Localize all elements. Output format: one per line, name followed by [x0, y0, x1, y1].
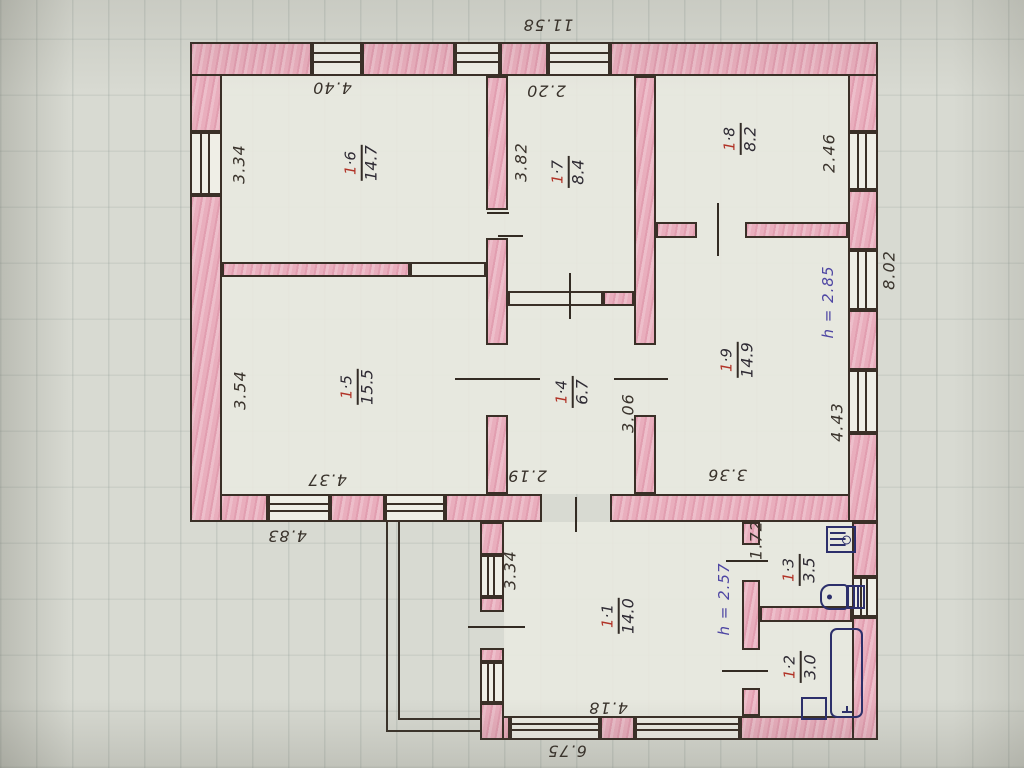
room-area: 14.9: [738, 342, 756, 378]
room-number: 1·9: [720, 342, 739, 378]
wall-segment: [486, 76, 508, 210]
wall-segment: [222, 262, 410, 277]
room-area: 6.7: [573, 376, 591, 408]
room-area: 8.2: [741, 123, 759, 155]
window-symbol: [635, 716, 740, 740]
room-label-1-8: 1·8 8.2: [723, 123, 760, 155]
room-number: 1·3: [782, 554, 801, 586]
room-label-1-9: 1·9 14.9: [720, 342, 757, 378]
window-symbol: [848, 250, 878, 310]
window-symbol: [268, 494, 330, 522]
room-number: 1·7: [551, 156, 570, 188]
dim-label-room11-height: 3.34: [501, 550, 520, 590]
room-area: 3.5: [800, 554, 818, 586]
wall-segment: [190, 42, 312, 76]
window-symbol: [480, 662, 504, 703]
dim-label-annex-total: 6.75: [547, 742, 587, 761]
window-symbol: [548, 42, 610, 76]
water-heater-icon: [826, 526, 856, 553]
ceiling-height-main: h = 2.85: [819, 265, 837, 338]
room-label-1-2: 1·2 3.0: [783, 651, 820, 683]
wall-partition-open: [508, 291, 603, 306]
dim-label-room13-height: 1.72: [747, 520, 766, 560]
room-area: 15.5: [358, 369, 376, 405]
wall-segment: [362, 42, 455, 76]
window-symbol: [510, 716, 600, 740]
photographed-floor-plan: 11.58 4.40 2.20 4.37 4.83 2.19 3.36 4.18…: [0, 0, 1024, 768]
window-symbol: [385, 494, 445, 522]
wall-segment: [656, 222, 697, 238]
wall-segment: [603, 291, 634, 306]
room-number: 1·5: [340, 369, 359, 405]
wall-segment: [480, 597, 504, 612]
window-symbol: [190, 132, 222, 195]
wall-segment: [745, 222, 848, 238]
toilet-cistern-icon: [847, 585, 865, 609]
room-area: 8.4: [569, 156, 587, 188]
room-area: 3.0: [801, 651, 819, 683]
bathtub-icon: [830, 628, 863, 718]
room-label-1-5: 1·5 15.5: [340, 369, 377, 405]
dim-label-room16-height: 3.34: [230, 144, 249, 184]
wall-segment: [848, 310, 878, 370]
door-mark: [498, 235, 523, 237]
window-symbol: [312, 42, 362, 76]
wall-segment: [486, 238, 508, 345]
room-number: 1·1: [601, 598, 620, 634]
sink-icon: [801, 697, 827, 720]
room-label-1-6: 1·6 14.7: [344, 145, 381, 181]
dim-label-room16-width: 4.40: [312, 79, 352, 98]
wall-segment: [600, 716, 635, 740]
room-number: 1·2: [783, 651, 802, 683]
dim-label-room15-width: 4.37: [307, 471, 347, 490]
door-mark: [569, 273, 571, 319]
dim-label-room15-height: 3.54: [231, 370, 250, 410]
wall-segment: [480, 703, 504, 740]
wall-segment: [500, 42, 548, 76]
door-mark: [722, 670, 768, 672]
dim-label-room19-height: 4.43: [828, 402, 847, 442]
room-number: 1·6: [344, 145, 363, 181]
room-number: 1·4: [555, 376, 574, 408]
room-label-1-3: 1·3 3.5: [782, 554, 819, 586]
plan-sheet: 11.58 4.40 2.20 4.37 4.83 2.19 3.36 4.18…: [0, 0, 1024, 768]
room-label-1-4: 1·4 6.7: [555, 376, 592, 408]
door-mark: [468, 626, 525, 628]
wall-segment: [742, 688, 760, 716]
ceiling-height-annex: h = 2.57: [715, 562, 733, 635]
dim-label-room11-width: 4.18: [588, 699, 628, 718]
room-area: 14.7: [362, 145, 380, 181]
dim-label-room19-width: 3.36: [707, 466, 747, 485]
wall-segment: [848, 433, 878, 522]
room-number: 1·8: [723, 123, 742, 155]
wall-segment: [445, 494, 542, 522]
door-mark: [455, 378, 540, 380]
window-symbol: [848, 132, 878, 190]
wall-segment: [330, 494, 385, 522]
wall-segment: [190, 195, 222, 522]
wall-segment: [610, 494, 878, 522]
door-mark: [717, 203, 719, 256]
wall-segment: [848, 190, 878, 250]
window-symbol: [848, 370, 878, 433]
wall-segment: [610, 42, 878, 76]
wall-segment: [742, 580, 760, 650]
wall-segment: [480, 648, 504, 662]
toilet-icon: [820, 584, 848, 610]
room-area: 14.0: [619, 598, 637, 634]
room-label-1-7: 1·7 8.4: [551, 156, 588, 188]
dim-label-annex-left: 4.83: [267, 527, 307, 546]
dim-label-room14-width: 2.19: [507, 467, 547, 486]
dim-label-room17-width: 2.20: [526, 82, 566, 101]
wall-partition-open: [410, 262, 486, 277]
window-symbol: [455, 42, 500, 76]
door-mark: [487, 212, 509, 214]
dim-label-room17-height: 3.82: [512, 142, 531, 182]
porch-outline-inner: [398, 522, 482, 720]
dim-label-right-total: 8.02: [880, 250, 899, 290]
wall-segment: [486, 415, 508, 494]
dim-label-top-total: 11.58: [523, 16, 574, 35]
wall-segment: [634, 76, 656, 345]
room-label-1-1: 1·1 14.0: [601, 598, 638, 634]
door-mark: [575, 497, 577, 532]
dim-label-room14-height: 3.06: [619, 393, 638, 433]
dim-label-room18-height: 2.46: [820, 133, 839, 173]
door-mark: [614, 378, 668, 380]
